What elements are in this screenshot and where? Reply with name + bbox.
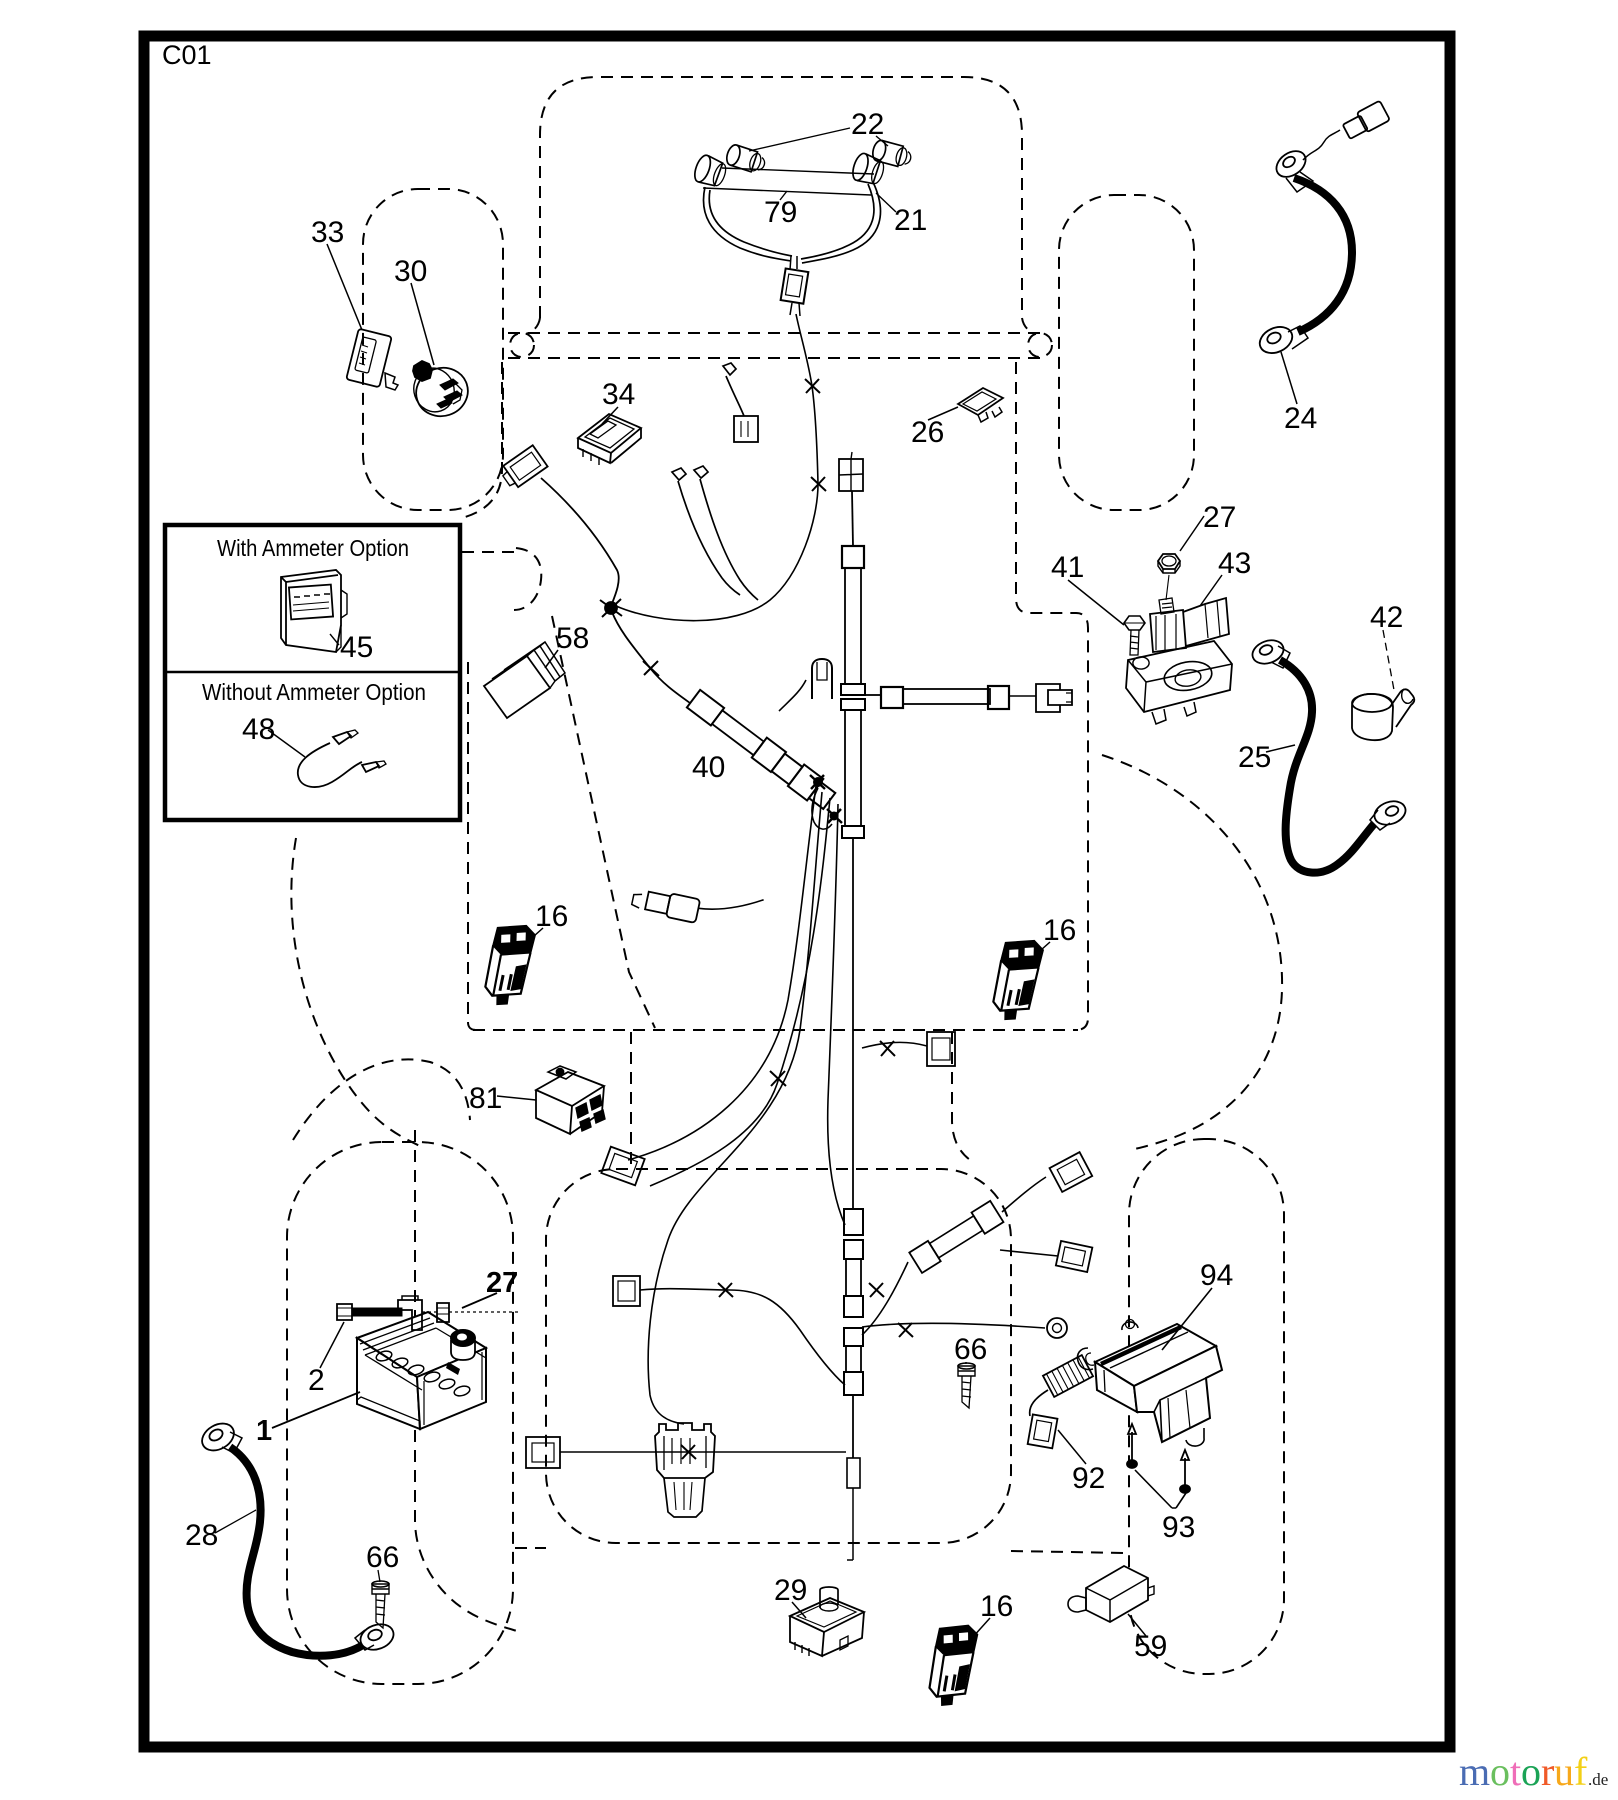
svg-text:t: t <box>1510 1749 1521 1794</box>
svg-text:24: 24 <box>1284 402 1317 435</box>
svg-text:81: 81 <box>469 1082 502 1115</box>
svg-text:41: 41 <box>1051 551 1084 584</box>
svg-text:43: 43 <box>1218 547 1251 580</box>
svg-text:48: 48 <box>242 713 275 746</box>
svg-text:C01: C01 <box>162 40 212 70</box>
svg-text:58: 58 <box>556 622 589 655</box>
svg-text:o: o <box>1490 1749 1510 1794</box>
svg-text:16: 16 <box>535 900 568 933</box>
svg-text:29: 29 <box>774 1574 807 1607</box>
svg-text:92: 92 <box>1072 1462 1105 1495</box>
svg-text:1: 1 <box>256 1415 272 1447</box>
svg-text:33: 33 <box>311 216 344 249</box>
svg-text:25: 25 <box>1238 741 1271 774</box>
svg-text:26: 26 <box>911 416 944 449</box>
svg-text:59: 59 <box>1134 1630 1167 1663</box>
svg-text:27: 27 <box>486 1267 518 1299</box>
svg-text:With Ammeter Option: With Ammeter Option <box>217 535 409 561</box>
svg-text:m: m <box>1459 1749 1490 1794</box>
svg-text:22: 22 <box>851 108 884 141</box>
svg-text:66: 66 <box>954 1333 987 1366</box>
svg-text:94: 94 <box>1200 1259 1233 1292</box>
svg-text:16: 16 <box>1043 914 1076 947</box>
svg-text:27: 27 <box>1203 501 1236 534</box>
svg-text:93: 93 <box>1162 1511 1195 1544</box>
svg-text:r: r <box>1541 1749 1554 1794</box>
svg-text:16: 16 <box>980 1590 1013 1623</box>
svg-text:2: 2 <box>308 1364 325 1397</box>
svg-text:u: u <box>1554 1749 1574 1794</box>
svg-text:79: 79 <box>764 196 797 229</box>
svg-text:34: 34 <box>602 378 635 411</box>
svg-text:21: 21 <box>894 204 927 237</box>
svg-text:Without Ammeter Option: Without Ammeter Option <box>202 679 426 705</box>
svg-text:o: o <box>1521 1749 1541 1794</box>
svg-text:28: 28 <box>185 1519 218 1552</box>
svg-text:40: 40 <box>692 751 725 784</box>
svg-text:42: 42 <box>1370 601 1403 634</box>
svg-text:30: 30 <box>394 255 427 288</box>
svg-text:f: f <box>1574 1749 1588 1794</box>
svg-text:.de: .de <box>1588 1770 1608 1789</box>
svg-text:45: 45 <box>340 631 373 664</box>
svg-text:66: 66 <box>366 1541 399 1574</box>
